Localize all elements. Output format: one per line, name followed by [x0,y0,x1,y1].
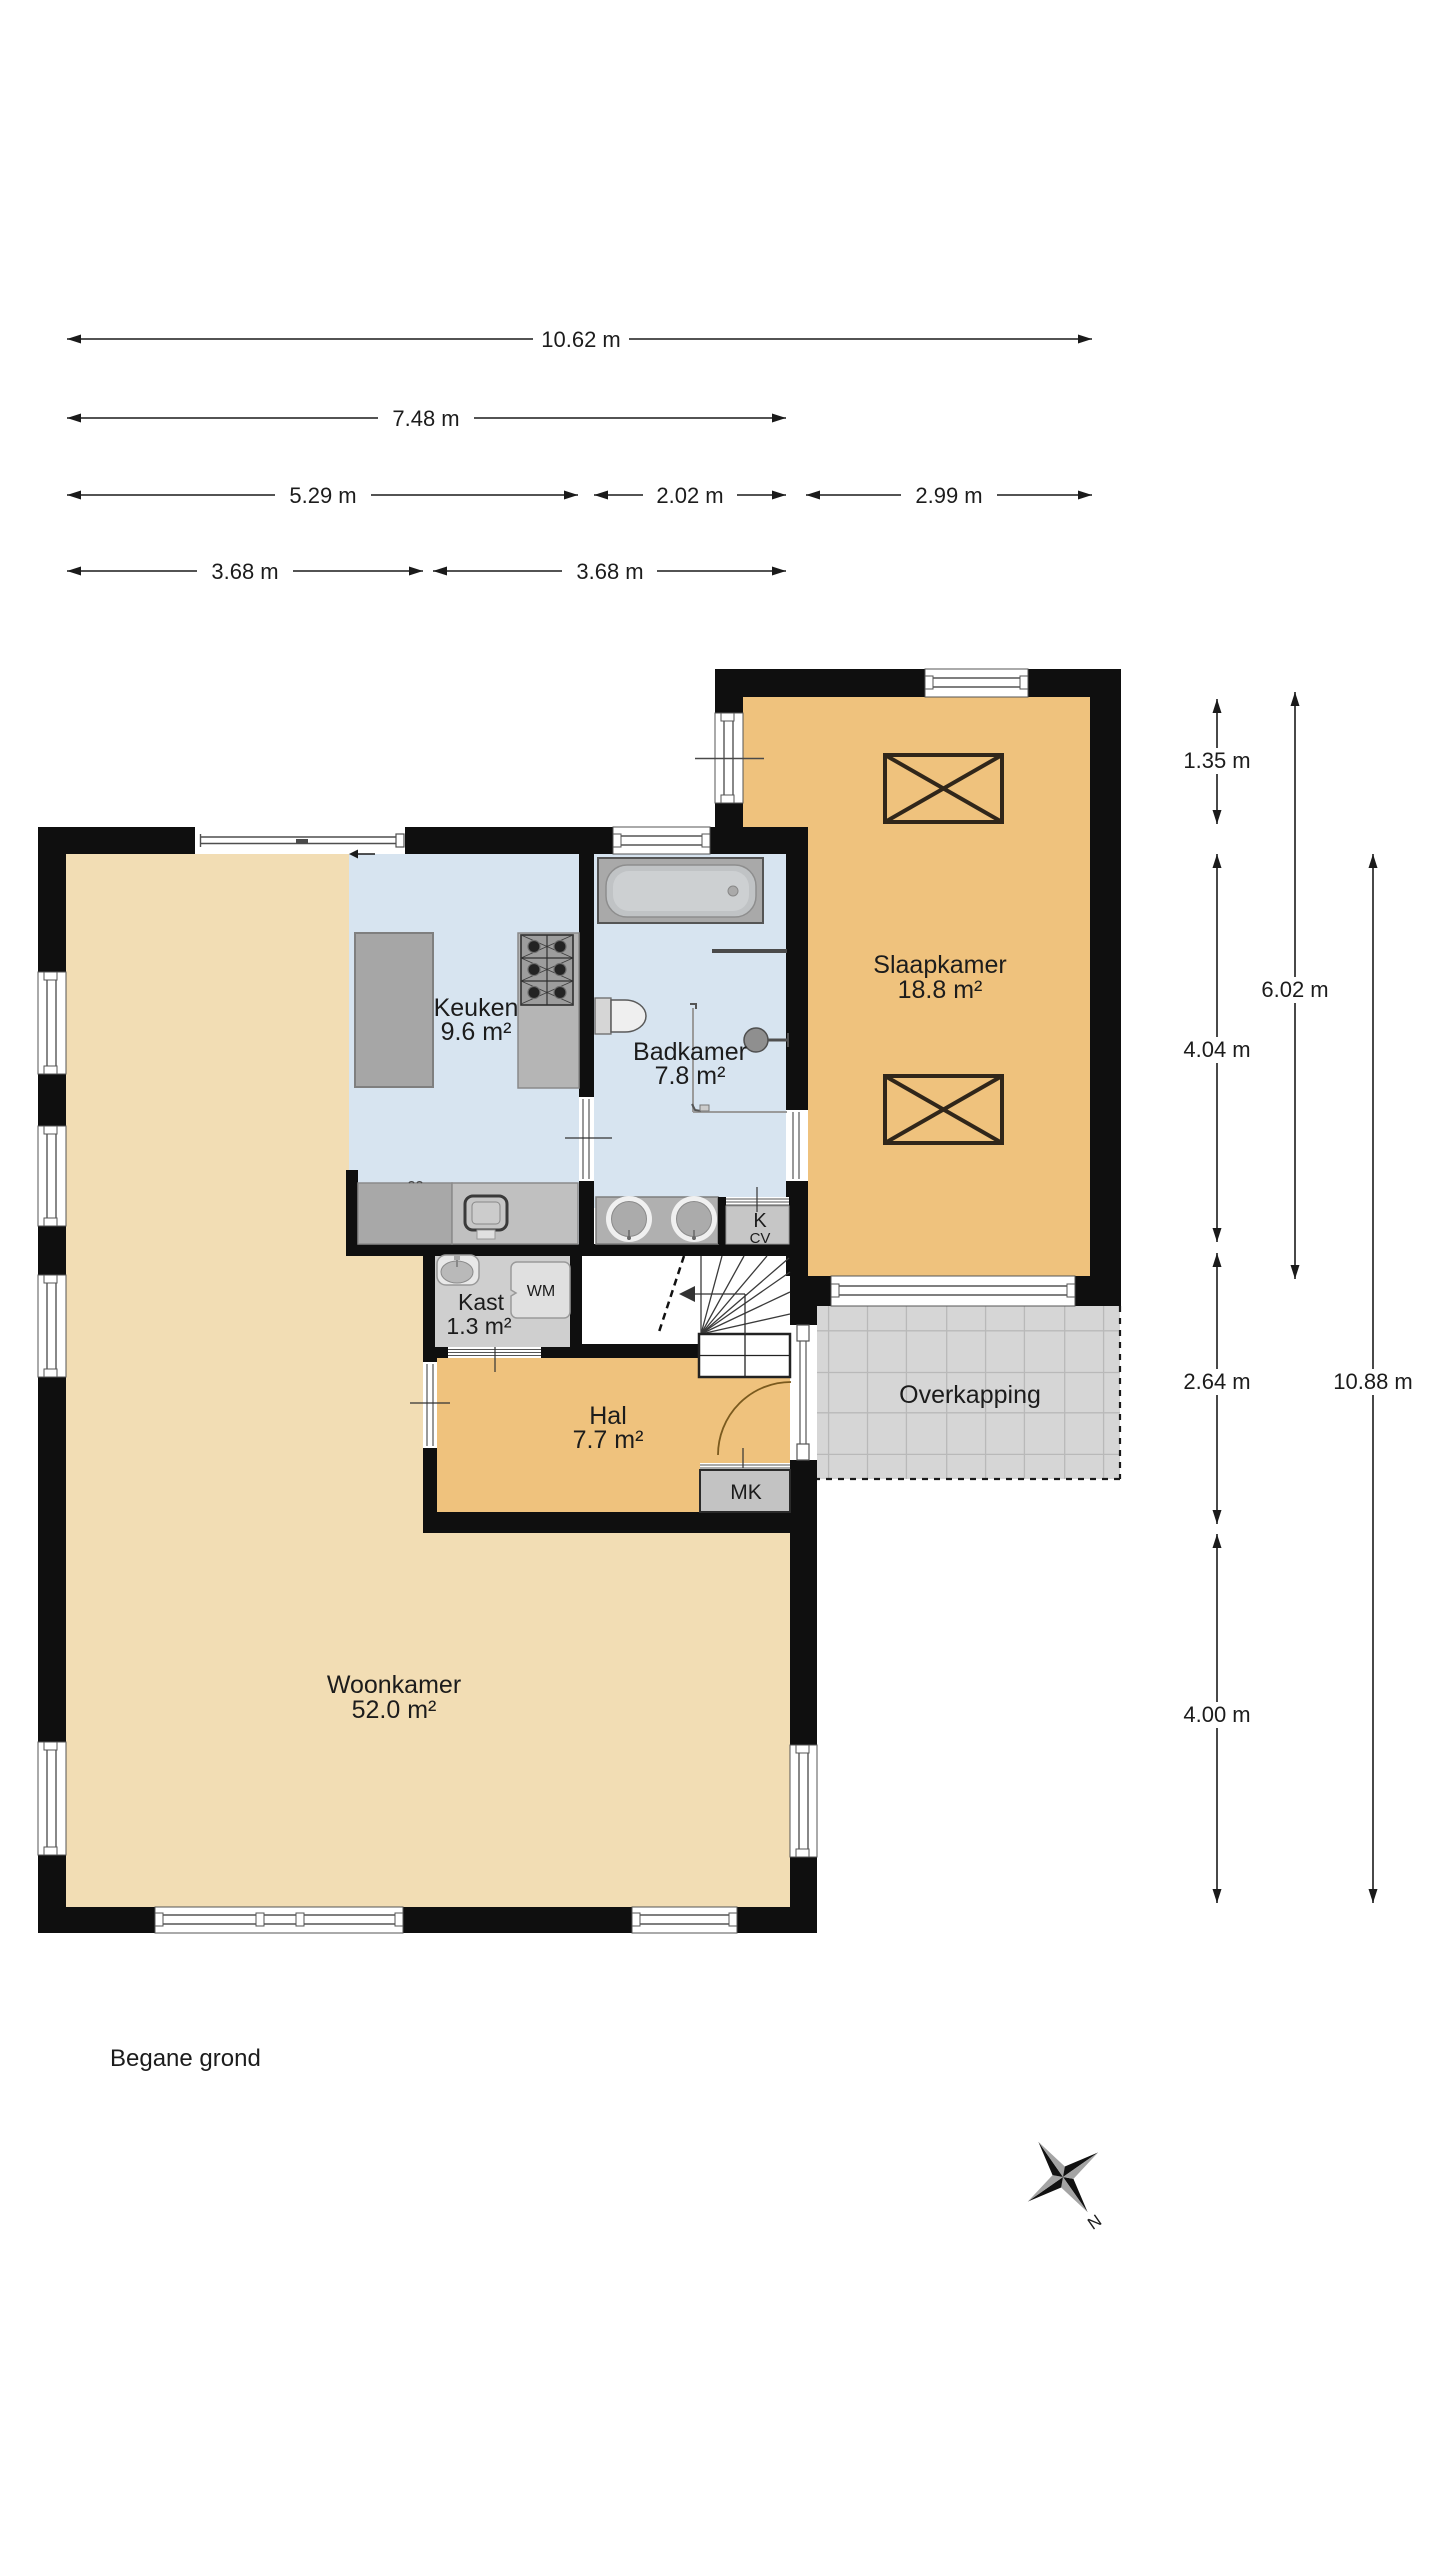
svg-text:2.02 m: 2.02 m [656,483,723,508]
svg-text:Overkapping: Overkapping [899,1381,1041,1409]
svg-text:4.04 m: 4.04 m [1183,1037,1250,1062]
svg-text:MK: MK [730,1481,762,1504]
svg-text:18.8 m²: 18.8 m² [898,976,983,1004]
svg-text:Woonkamer: Woonkamer [327,1671,461,1699]
svg-text:52.0 m²: 52.0 m² [352,1696,437,1724]
svg-text:CV: CV [750,1230,771,1247]
svg-text:6.02 m: 6.02 m [1261,977,1328,1002]
svg-text:10.62 m: 10.62 m [541,327,621,352]
svg-text:7.8 m²: 7.8 m² [655,1062,726,1090]
svg-text:1.3 m²: 1.3 m² [446,1313,512,1339]
svg-text:2.99 m: 2.99 m [915,483,982,508]
svg-text:Kast: Kast [458,1289,505,1315]
svg-text:K: K [753,1210,767,1232]
svg-text:7.7 m²: 7.7 m² [573,1426,644,1454]
svg-text:N: N [1084,2210,1105,2233]
svg-text:4.00 m: 4.00 m [1183,1702,1250,1727]
svg-text:WM: WM [527,1283,555,1300]
svg-text:10.88 m: 10.88 m [1333,1369,1413,1394]
svg-text:3.68 m: 3.68 m [211,559,278,584]
svg-text:1.35 m: 1.35 m [1183,748,1250,773]
svg-text:5.29 m: 5.29 m [289,483,356,508]
svg-text:Begane grond: Begane grond [110,2045,261,2072]
svg-text:2.64 m: 2.64 m [1183,1369,1250,1394]
svg-text:Slaapkamer: Slaapkamer [873,951,1006,979]
svg-text:3.68 m: 3.68 m [576,559,643,584]
svg-text:9.6 m²: 9.6 m² [441,1018,512,1046]
svg-text:7.48 m: 7.48 m [392,406,459,431]
